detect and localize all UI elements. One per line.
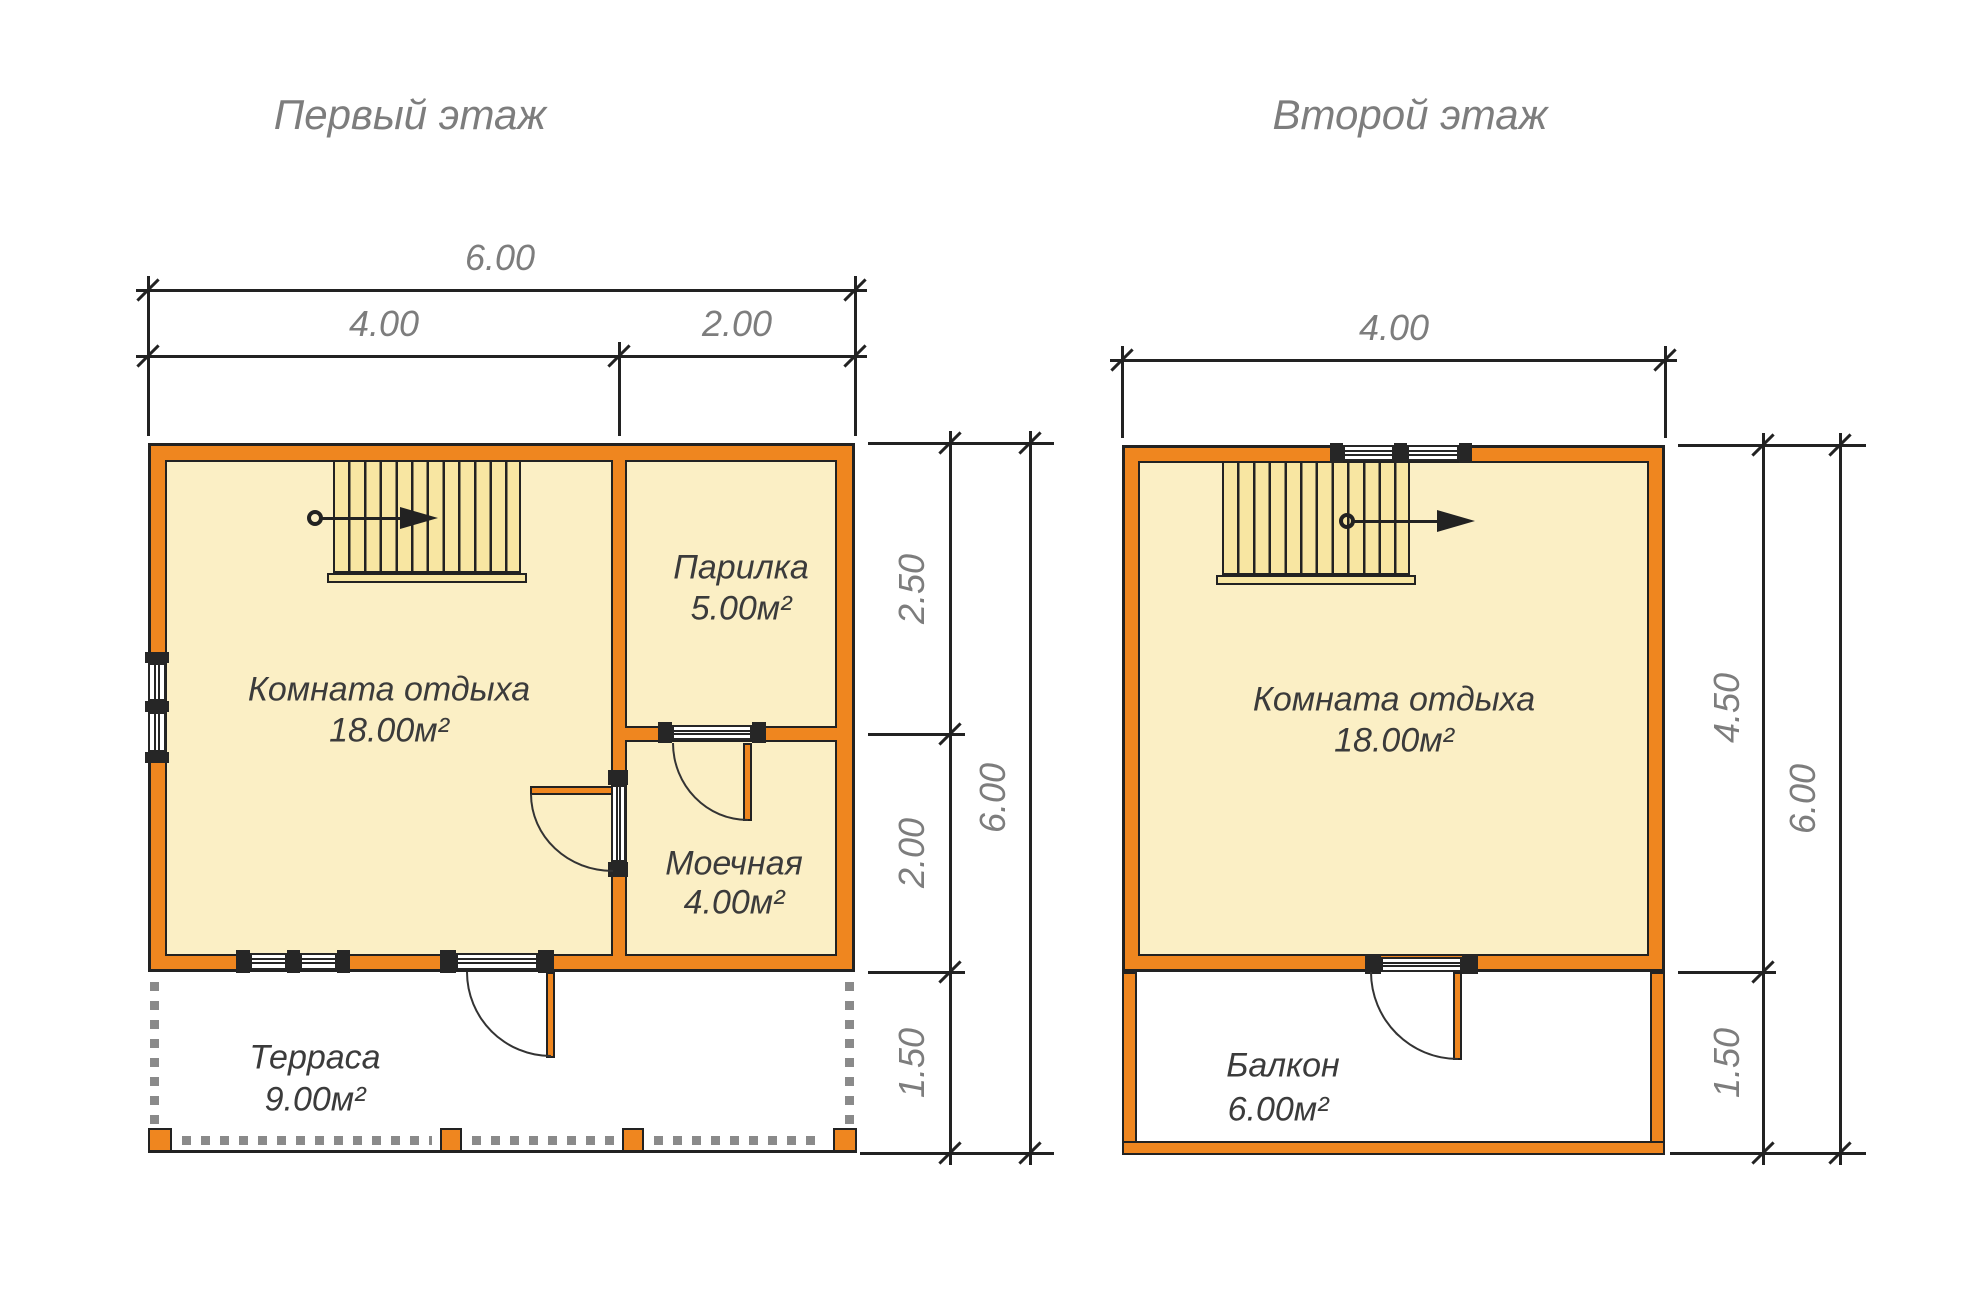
- extension-line: [147, 276, 150, 436]
- window-cap: [1330, 443, 1343, 463]
- window-cap: [1394, 443, 1407, 463]
- door-jamb: [658, 722, 672, 743]
- dim-line: [949, 431, 952, 1165]
- dim-line: [136, 289, 867, 292]
- dim-line: [1110, 359, 1677, 362]
- door-threshold: [1381, 957, 1462, 972]
- dim-label-left-width: 4.00: [349, 303, 419, 345]
- dim-label-floor2-width: 4.00: [1359, 307, 1429, 349]
- dim-label-total-width: 6.00: [465, 237, 535, 279]
- dim-line: [1839, 433, 1842, 1165]
- door-jamb: [1462, 954, 1478, 974]
- room-label-washroom: Моечная: [665, 845, 803, 884]
- floor-plan-canvas: Первый этаж 6.00 4.00 2.00: [0, 0, 1988, 1292]
- stairs-icon: [1222, 461, 1410, 575]
- door-swing-arc: [1370, 972, 1458, 1060]
- room-area-rest-room2: 18.00м²: [1334, 722, 1454, 761]
- terrace-dotted-border: [472, 1136, 614, 1145]
- extension-line: [854, 276, 857, 436]
- terrace-dotted-border: [654, 1136, 824, 1145]
- window: [148, 663, 166, 701]
- door-swing-arc: [466, 972, 551, 1057]
- room-label-rest-room2: Комната отдыха: [1253, 681, 1535, 720]
- floor1-title: Первый этаж: [274, 91, 546, 139]
- dim-label-total-depth: 6.00: [972, 763, 1014, 833]
- terrace-dotted-border: [845, 982, 854, 1124]
- stair-direction-start-icon: [307, 510, 323, 526]
- dim-label-floor2-total-depth: 6.00: [1782, 764, 1824, 834]
- window: [1407, 445, 1459, 461]
- floor2-title: Второй этаж: [1272, 91, 1547, 139]
- terrace-post: [148, 1128, 172, 1152]
- window: [1343, 445, 1394, 461]
- extension-line: [1664, 346, 1667, 438]
- stair-direction-line: [1354, 520, 1439, 523]
- extension-line: [618, 342, 621, 436]
- balcony-wall: [1122, 1141, 1665, 1155]
- dim-label-sauna-depth: 2.50: [891, 554, 933, 624]
- room-area-rest-room: 18.00м²: [329, 712, 449, 751]
- window-cap: [236, 950, 250, 973]
- dim-line: [1029, 431, 1032, 1165]
- dim-line: [1762, 433, 1765, 1165]
- room-label-rest-room: Комната отдыха: [248, 671, 530, 710]
- terrace-dotted-border: [150, 982, 159, 1124]
- stair-direction-arrow-icon: [400, 507, 438, 529]
- window-cap: [337, 950, 350, 973]
- stair-direction-arrow-icon: [1437, 510, 1475, 532]
- door-threshold: [611, 785, 626, 862]
- door-jamb: [752, 722, 766, 743]
- terrace-edge: [148, 1150, 857, 1153]
- balcony-wall: [1122, 972, 1137, 1155]
- terrace-post: [622, 1128, 644, 1152]
- room-label-balcony: Балкон: [1226, 1047, 1340, 1086]
- dim-label-room2-depth: 4.50: [1706, 673, 1748, 743]
- balcony-wall: [1650, 972, 1665, 1155]
- window: [300, 953, 337, 970]
- door-threshold: [456, 953, 538, 970]
- stairs-landing: [327, 573, 527, 583]
- window-cap: [145, 652, 169, 663]
- dim-line: [136, 355, 867, 358]
- stairs-landing: [1216, 575, 1416, 585]
- window-cap: [145, 752, 169, 763]
- room-area-terrace: 9.00м²: [265, 1081, 366, 1120]
- terrace-dotted-border: [182, 1136, 432, 1145]
- door-jamb: [608, 770, 628, 785]
- stair-direction-line: [322, 517, 402, 520]
- dim-label-balcony-depth: 1.50: [1706, 1028, 1748, 1098]
- stair-direction-start-icon: [1339, 513, 1355, 529]
- room-label-sauna: Парилка: [673, 549, 809, 588]
- door-threshold: [672, 725, 752, 740]
- dim-label-terrace-depth: 1.50: [891, 1028, 933, 1098]
- room-area-balcony: 6.00м²: [1228, 1091, 1329, 1130]
- dim-label-right-width: 2.00: [702, 303, 772, 345]
- door-jamb: [538, 950, 554, 973]
- room-label-terrace: Терраса: [249, 1039, 380, 1078]
- window-cap: [145, 701, 169, 712]
- door-jamb: [1365, 954, 1381, 974]
- window: [148, 712, 166, 752]
- terrace-post: [440, 1128, 462, 1152]
- window-cap: [1459, 443, 1472, 463]
- room-area-washroom: 4.00м²: [684, 884, 785, 923]
- extension-line: [1121, 346, 1124, 438]
- window: [250, 953, 287, 970]
- window-cap: [287, 950, 300, 973]
- room-area-sauna: 5.00м²: [691, 590, 792, 629]
- door-jamb: [440, 950, 456, 973]
- terrace-post: [833, 1128, 857, 1152]
- dim-label-washroom-depth: 2.00: [891, 818, 933, 888]
